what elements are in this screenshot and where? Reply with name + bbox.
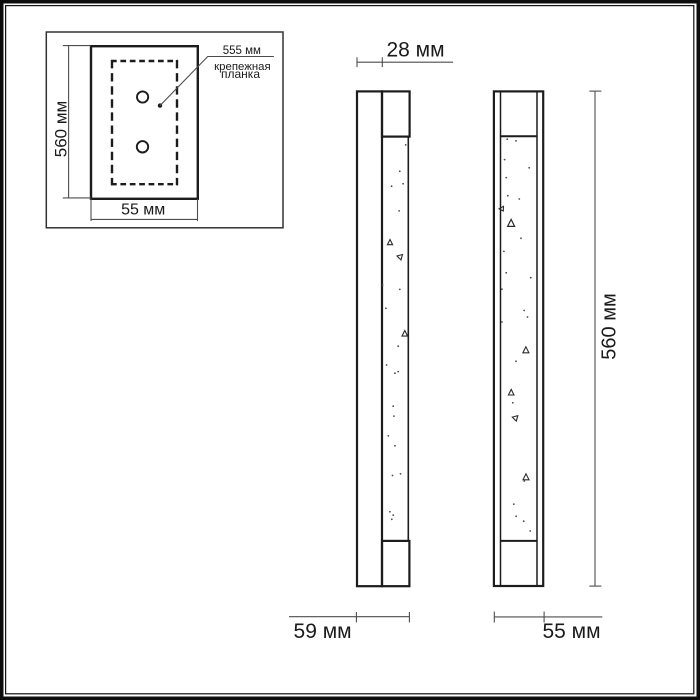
svg-text:планка: планка [221, 67, 260, 81]
svg-text:28 мм: 28 мм [386, 39, 444, 62]
svg-text:59 мм: 59 мм [294, 620, 352, 643]
svg-text:55 мм: 55 мм [542, 620, 600, 643]
svg-text:560 мм: 560 мм [598, 293, 620, 359]
svg-text:560 мм: 560 мм [52, 101, 71, 157]
svg-text:55 мм: 55 мм [121, 202, 165, 219]
svg-text:555 мм: 555 мм [223, 45, 261, 57]
